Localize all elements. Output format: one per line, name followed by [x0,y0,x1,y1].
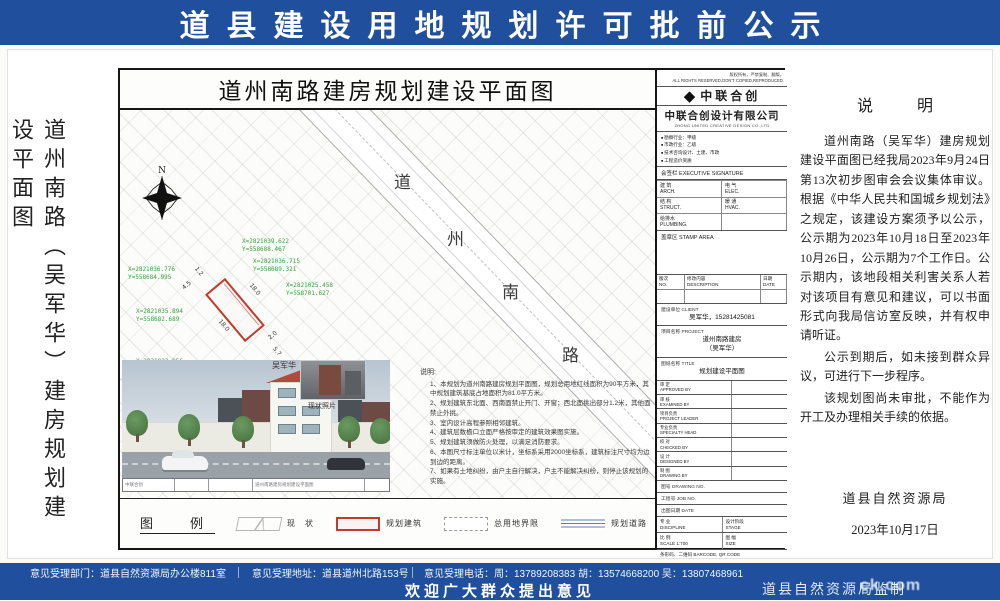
note-7: 7、如果有土地纠纷，由户主自行解决，户主不能解决纠纷，则停止该规划的实施。 [420,467,652,487]
note-2: 2、规划建筑东北面、西南面禁止开门、开窗；西北面挑出部分1.2米，其他面禁止外挑… [420,399,652,419]
copyright-note: 版权所有，严禁复制、翻版。 ALL RIGHTS RESERVED,DON'T … [657,70,787,87]
road-char-2: 州 [447,225,464,250]
note-4: 4、建筑层数檐口立面严格按审定的建筑效果图实施。 [420,428,652,438]
dark-car [327,458,365,470]
checked-by-row: 校 对 CHECKED BY [657,438,732,451]
statement-paragraph-3: 该规划图尚未审批，不能作为开工及办理相关手续的依据。 [800,389,990,428]
logo-diamond-icon: ◆ [684,87,696,105]
dim-2-0a: 2.0 [267,330,279,341]
company-name-cn: 中联合创设计有限公司 [657,108,787,123]
coord-label-2: X=2821036.715 Y=558689.321 [253,258,300,273]
notice-poster: 道县建设用地规划许可批前公示 道州南路（吴军华）建房规划建设平面图 道州南路建房… [0,0,1000,600]
barcode-note: 条形码、二维码 BARCODE, QR CODE [657,550,787,560]
date-field: 出图日期 DATE [657,505,787,517]
dim-1-2: 1.2 [193,266,204,278]
current-condition-photo [300,360,366,400]
building-owner-label: 吴军华 [272,360,296,371]
dim-18-left: 18.0 [248,282,262,297]
drawing-no-field: 图号 DRAWING NO. [657,481,787,493]
company-name-block: 中联合创设计有限公司 ZHONG UNITED CREATIVE DESIGN … [657,106,787,132]
legend-title: 图 例 [140,513,215,534]
specialty-head-row: 专业负责 SPECIALTY HEAD [657,424,732,437]
contact-phone: 意见受理电话：周：13789208383 胡：13574668200 吴：138… [424,565,743,580]
drawing-title-band: 道州南路建房规划建设平面图 [120,70,655,110]
drawing-title: 道州南路建房规划建设平面图 [219,72,557,106]
left-vertical-title: 道州南路（吴军华）建房规划建设平面图 [20,118,54,548]
north-arrow: N [140,166,184,228]
coord-label-4: X=2821025.458 Y=558701.627 [286,282,333,297]
road-char-1: 道 [394,168,411,193]
compass-star-icon [142,176,182,220]
statement-title: 说 明 [800,92,990,116]
contact-dept: 意见受理部门：道县自然资源局办公楼811室 [30,565,226,580]
project-leader-row: 项目负责 PROJECT LEADER [657,409,732,422]
dim-5-7: 5.7 [271,346,282,358]
signature-grid: 建 筑 ARCH. 电 气 ELEC. 结 构 STRUCT. 暖 通 HVAC… [657,180,787,231]
logo-text: 中联合创 [700,87,760,104]
drawn-by-row: 制 图 DRAWING BY [657,467,732,480]
approved-by-row: 审 定 APPROVED BY [657,381,732,394]
qualification-list: 勘察行业：甲级 市政行业：乙级 技术咨询设计、土建、市政 工程造价资质 [657,132,787,167]
scale-size-row: 比 例 SCALE 1:700 图 幅 SIZE [657,533,787,549]
rendering-photo: 吴军华 现状照片 [122,360,390,478]
notice-title: 道县建设用地规划许可批前公示 [163,1,838,45]
examined-by-row: 审 核 EXAMINED BY [657,395,732,408]
sheet-title-field: 图纸名称 TITLE 规划建设平面图 [657,358,787,381]
contact-addr: 意见受理地址：道县道州北路153号 [252,565,409,580]
notes-title: 说明: [420,368,652,379]
road-char-4: 路 [562,341,579,366]
bottom-banner: 意见受理部门：道县自然资源局办公楼811室 意见受理地址：道县道州北路153号 … [0,563,1000,600]
planned-building-swatch [336,517,380,531]
planned-road-swatch [561,517,605,530]
signature-panel-header: 会签栏 EXECUTIVE SIGNATURE [657,167,787,180]
statement-panel: 说 明 道州南路（吴军华）建房规划建设平面图已经我局2023年9月24日第13次… [800,92,990,550]
note-1: 1、本规划为道州南路建房规划平面图，规划总用地红线面积为90平方米，其中规划建筑… [420,380,652,400]
stamp-area: 盖章区 STAMP AREA [657,231,787,275]
statement-paragraph-1: 道州南路（吴军华）建房规划建设平面图已经我局2023年9月24日第13次初步图审… [800,132,990,346]
note-5: 5、规划建筑须做防火处理，以满足消防要求。 [420,438,652,448]
contact-row: 意见受理部门：道县自然资源局办公楼811室 意见受理地址：道县道州北路153号 … [0,565,1000,579]
project-field: 项目名称 PROJECT 道州南路建房 （吴军华） [657,326,787,358]
strip-logo: 中联合创 [123,479,175,491]
strip-title: 道州南路建房规划建设平面图 [253,479,365,491]
top-banner: 道县建设用地规划许可批前公示 [0,0,1000,45]
coord-label-1: X=2821039.622 Y=558688.467 [242,238,289,253]
company-name-en: ZHONG UNITED CREATIVE DESIGN CO.,LTD [657,123,787,128]
legend-item-planned-road: 规划道路 [561,517,647,530]
inset-photo-label: 现状照片 [308,401,336,411]
client-field: 建设单位 CLIENT 吴军华，15281425081 [657,304,787,327]
drawing-notes: 说明: 1、本规划为道州南路建房规划平面图，规划总用地红线面积为90平方米，其中… [420,368,652,494]
legend-item-site-boundary: 总用地界限 [444,517,539,531]
scale-value: 比 例 SCALE 1:700 [657,533,723,548]
site-boundary-swatch [444,517,488,531]
coord-label-3: X=2821036.776 Y=558684.995 [128,266,175,281]
note-6: 6、本图尺寸标注单位以米计，坐标系采用2000坐标系，建筑标注尺寸均为边到边的距… [420,448,652,468]
north-label: N [140,166,184,176]
agency-name: 道县自然资源局 [800,488,990,507]
agency-signature: 道县自然资源局 2023年10月17日 [800,488,990,538]
coord-label-5: X=2821035.894 Y=558682.689 [136,308,183,323]
job-no-field: 工程号 JOB NO. [657,493,787,505]
company-logo: ◆ 中联合创 [657,87,787,106]
legend-item-existing: 现 状 [237,517,314,531]
watermark-text: ck.com [860,577,921,595]
notice-date: 2023年10月17日 [800,519,990,538]
statement-paragraph-2: 公示到期后，如未接到群众异议，可进行下一步程序。 [800,348,990,387]
revision-table: 版次 NO. 修改内容 DESCRIPTION 日期 DATE [657,275,787,304]
road-char-3: 南 [502,278,519,303]
legend-row: 图 例 现 状 规划建筑 总用地界限 规划道路 坐 标 [120,498,655,548]
designed-by-row: 设 计 DESIGNED BY [657,452,732,465]
dim-4-5: 4.5 [181,280,193,291]
discipline-stage-row: 专 业 DISCIPLINE 设计阶段 STAGE [657,517,787,533]
existing-swatch [236,517,283,531]
photo-titlebar-strip: 中联合创 道州南路建房规划建设平面图 [122,478,390,492]
legend-item-planned-building: 规划建筑 [336,517,422,531]
white-car [162,456,208,470]
note-3: 3、室内设计高程参照相邻建筑。 [420,419,652,429]
drawing-sheet: 道州南路建房规划建设平面图 道 州 南 路 N X=2821039.622 Y=… [118,68,785,550]
title-block: 版权所有，严禁复制、翻版。 ALL RIGHTS RESERVED,DON'T … [655,70,787,548]
